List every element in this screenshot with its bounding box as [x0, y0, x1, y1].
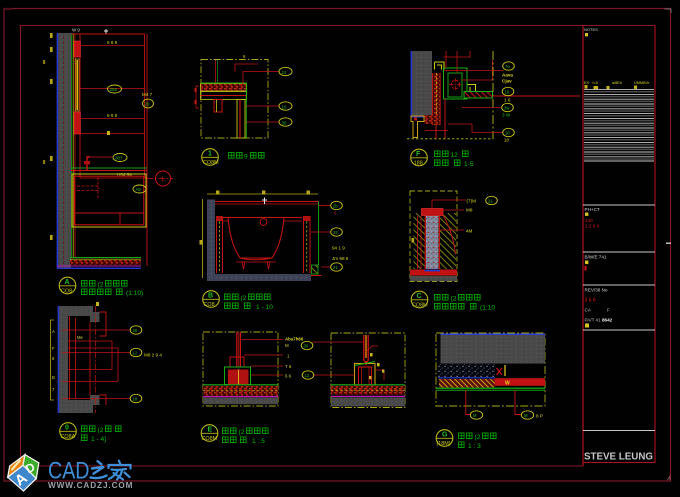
svg-text:32: 32 — [333, 230, 338, 235]
svg-text:E: E — [208, 427, 213, 434]
svg-text:3 W: 3 W — [502, 113, 511, 118]
svg-text:10: 10 — [504, 138, 510, 143]
svg-text:1 - 10: 1 - 10 — [256, 304, 273, 311]
svg-text:1-5: 1-5 — [464, 161, 474, 168]
svg-text:M: M — [524, 413, 528, 418]
svg-text:Aba7h66: Aba7h66 — [285, 337, 304, 342]
svg-text:1 6: 1 6 — [504, 98, 511, 103]
svg-text:(2: (2 — [239, 429, 245, 436]
svg-text:CO8: CO8 — [61, 289, 72, 295]
svg-text:9: 9 — [244, 154, 248, 161]
svg-text:M: M — [473, 413, 477, 418]
svg-text:M8: M8 — [466, 208, 473, 213]
svg-text:F: F — [416, 151, 421, 158]
svg-text:(18M): (18M) — [437, 441, 451, 447]
svg-text:(2: (2 — [451, 296, 457, 303]
svg-text:21: 21 — [333, 265, 338, 270]
svg-text:9 8 8: 9 8 8 — [107, 113, 118, 118]
svg-text:Me: Me — [77, 335, 83, 340]
svg-text:h 8: h 8 — [593, 81, 598, 85]
svg-text:29: 29 — [145, 102, 150, 107]
svg-text:Jm 98 8: Jm 98 8 — [332, 256, 349, 261]
svg-text:10: 10 — [505, 131, 510, 136]
svg-text:CO8M: CO8M — [203, 160, 219, 166]
svg-text:18: 18 — [133, 397, 138, 402]
svg-text:T 6: T 6 — [285, 364, 292, 369]
svg-text:WWW.CADZJ.COM: WWW.CADZJ.COM — [48, 481, 133, 490]
svg-text:21: 21 — [282, 70, 287, 75]
svg-text:B: B — [52, 375, 55, 380]
svg-text:1 - 4]: 1 - 4] — [91, 436, 106, 443]
svg-text:M8 2 9 4: M8 2 9 4 — [144, 353, 162, 358]
svg-text:30: 30 — [282, 120, 287, 125]
svg-text:(7)M: (7)M — [467, 199, 477, 204]
svg-text:307: 307 — [115, 156, 123, 161]
svg-text:(1:10: (1:10 — [480, 305, 495, 312]
svg-text:F: F — [607, 308, 610, 313]
svg-text:A: A — [52, 329, 55, 334]
svg-text:G: G — [442, 432, 448, 439]
svg-text:F: F — [52, 346, 55, 351]
svg-text:W 9: W 9 — [72, 28, 80, 33]
svg-text:6 8 8: 6 8 8 — [107, 40, 118, 45]
svg-text:M4 7: M4 7 — [142, 92, 153, 97]
svg-text:7a: 7a — [505, 64, 510, 69]
svg-text:94 1 9: 94 1 9 — [332, 246, 345, 251]
svg-text:REV/38 No: REV/38 No — [585, 288, 608, 293]
svg-text:UMMBVr: UMMBVr — [634, 81, 650, 85]
svg-text:12: 12 — [451, 152, 459, 159]
svg-text:30: 30 — [133, 328, 138, 333]
svg-text:EX: EX — [584, 81, 590, 85]
svg-text:1: 1 — [208, 151, 212, 158]
svg-text:B: B — [208, 293, 213, 300]
svg-text:3 6 6: 3 6 6 — [585, 298, 596, 304]
svg-text:PH+CT: PH+CT — [585, 207, 600, 212]
svg-text:(2: (2 — [475, 434, 481, 441]
svg-text:A5: A5 — [136, 187, 142, 192]
svg-text:W: W — [505, 381, 510, 387]
svg-text:(2: (2 — [98, 427, 104, 434]
svg-text:PA/T 41 8642: PA/T 41 8642 — [585, 318, 613, 323]
svg-text:(2: (2 — [98, 282, 104, 289]
svg-text:4M: 4M — [466, 229, 473, 234]
svg-text:1 : 3: 1 : 3 — [468, 443, 481, 450]
svg-text:1:2 6 4: 1:2 6 4 — [585, 224, 599, 229]
svg-text:Aava: Aava — [502, 73, 513, 78]
svg-text:(2: (2 — [241, 295, 247, 302]
svg-text:12: 12 — [133, 351, 138, 356]
svg-text:12: 12 — [305, 373, 310, 378]
svg-text:-188: -188 — [412, 161, 423, 167]
svg-text:21: 21 — [488, 199, 493, 204]
svg-text:CO8A: CO8A — [61, 434, 76, 440]
svg-text:CA: CA — [585, 308, 592, 313]
svg-text:STEVE LEUNG: STEVE LEUNG — [584, 452, 653, 463]
svg-text:8 P: 8 P — [536, 414, 543, 419]
svg-text:140: 140 — [585, 218, 593, 223]
svg-text:Cjav: Cjav — [502, 79, 512, 84]
svg-text:CO8M: CO8M — [412, 303, 428, 309]
svg-text:a/8Eh: a/8Eh — [612, 81, 622, 85]
svg-text:6 6: 6 6 — [285, 374, 292, 379]
svg-text:NOTES: NOTES — [584, 27, 598, 32]
svg-text:A: A — [65, 279, 70, 286]
svg-text:C: C — [417, 293, 422, 300]
svg-text:16: 16 — [282, 104, 287, 109]
svg-text:M: M — [285, 343, 289, 348]
svg-text:CO8M: CO8M — [202, 436, 218, 442]
svg-text:30: 30 — [304, 344, 309, 349]
svg-text:B/W/E 741: B/W/E 741 — [585, 255, 607, 260]
svg-text:(1:10): (1:10) — [126, 290, 143, 297]
svg-text:2b: 2b — [333, 204, 338, 209]
svg-text:0: 0 — [65, 425, 69, 432]
svg-text:16: 16 — [505, 90, 510, 95]
svg-text:1 : 5: 1 : 5 — [252, 438, 265, 445]
svg-text:CO8: CO8 — [204, 302, 215, 308]
svg-text:292: 292 — [110, 87, 118, 92]
